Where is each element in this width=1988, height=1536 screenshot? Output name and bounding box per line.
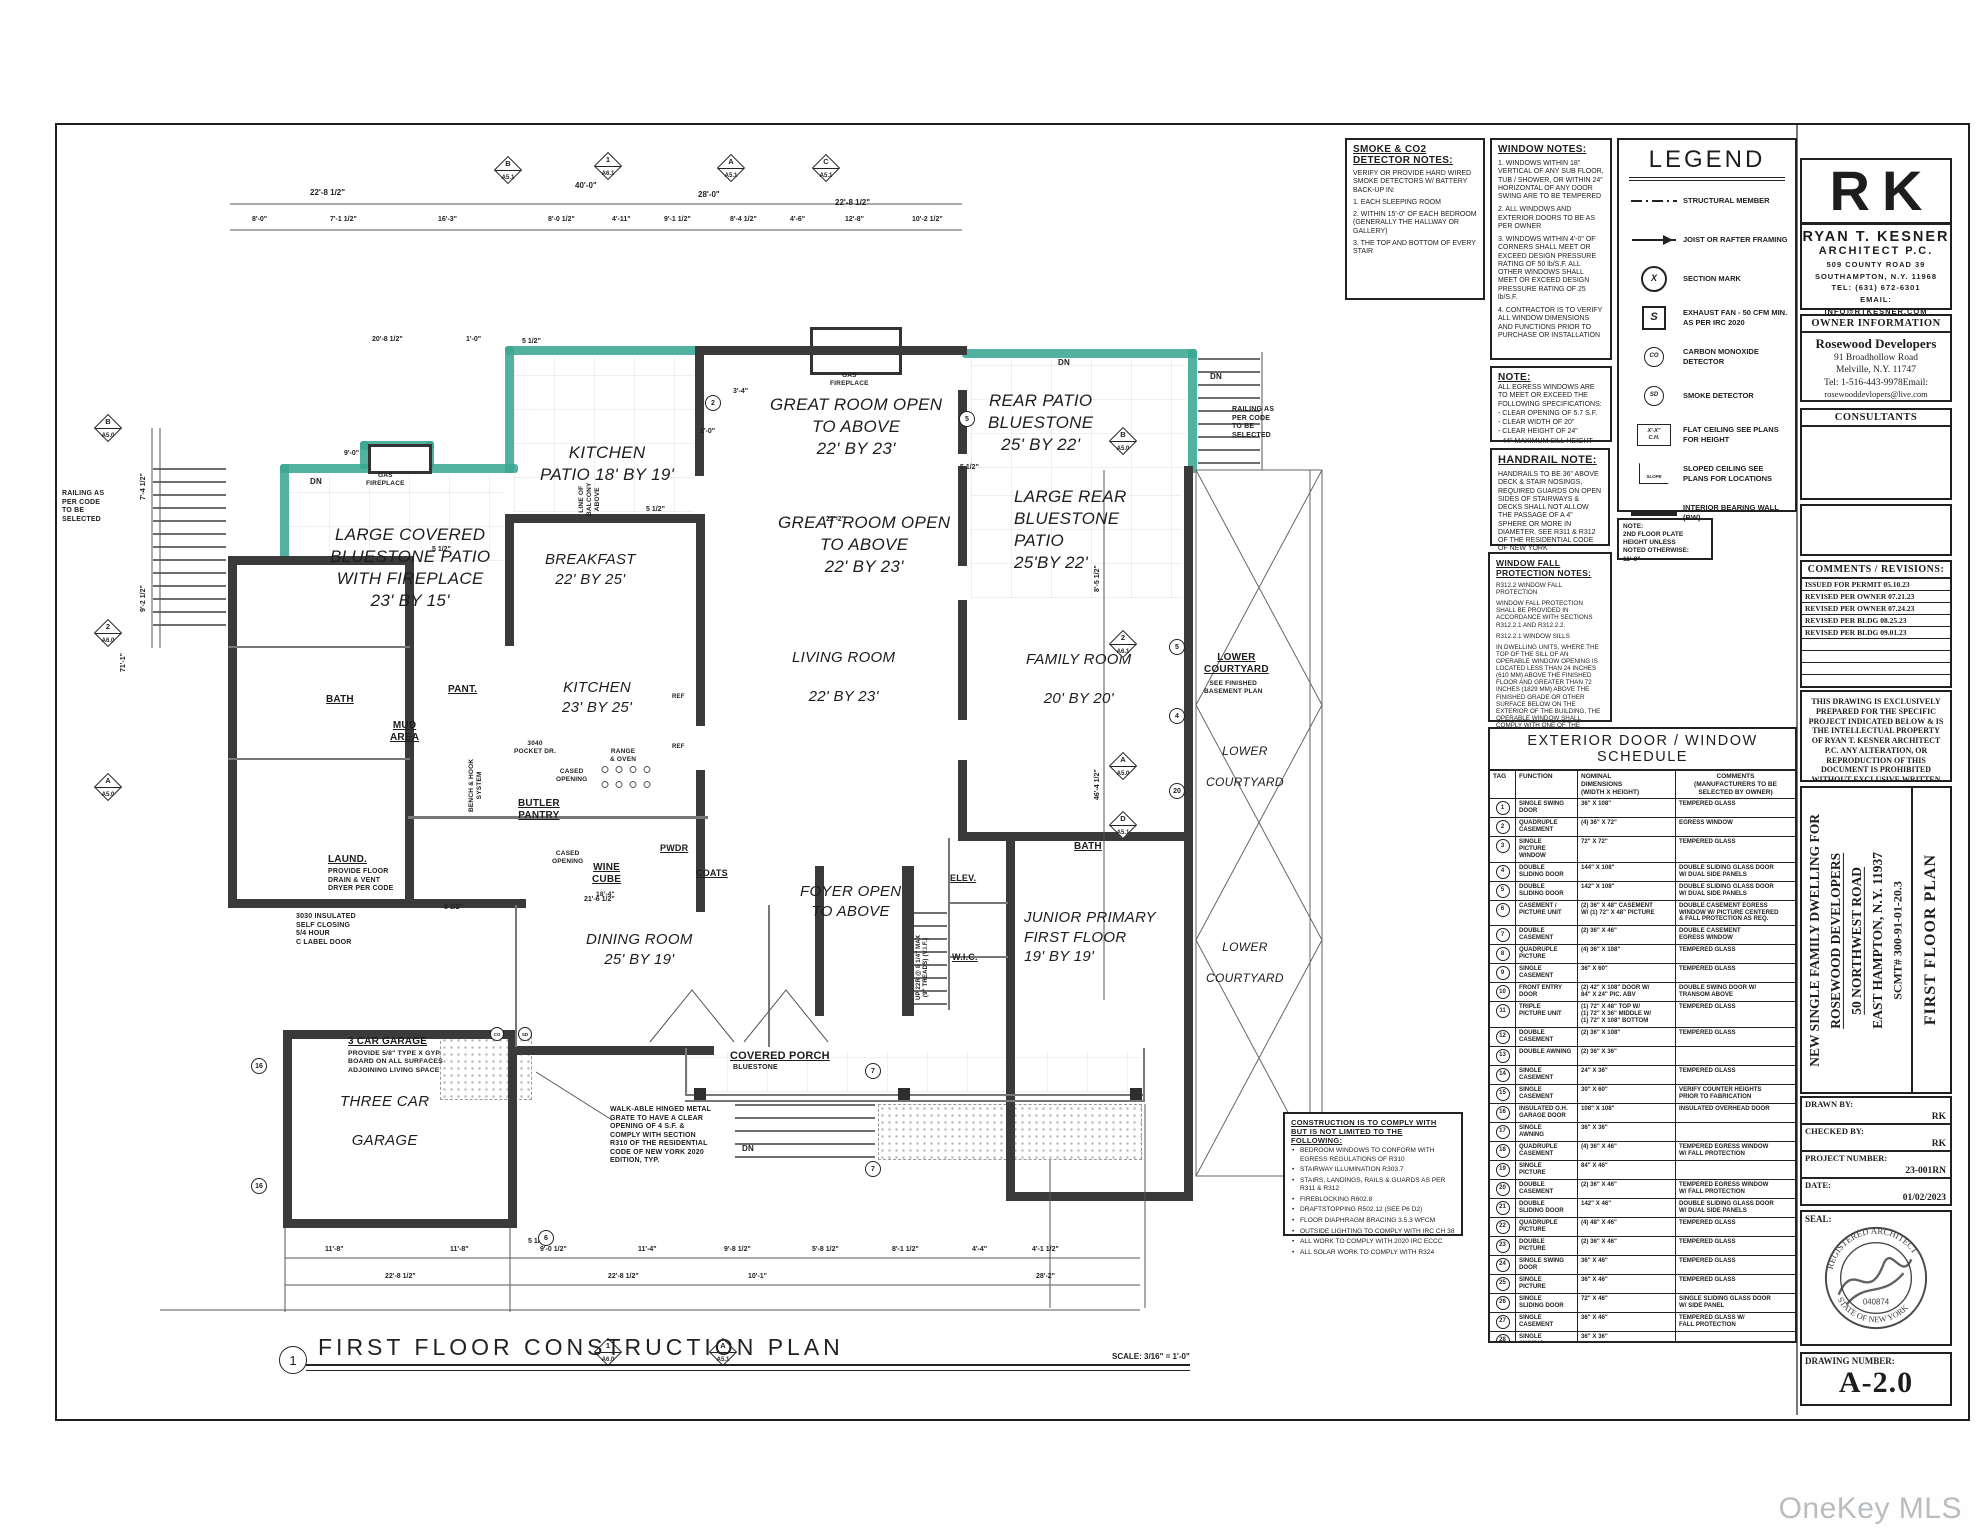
svg-text:040874: 040874	[1863, 1298, 1890, 1307]
patio-highlight	[280, 464, 289, 564]
room-label: DN	[742, 1144, 754, 1154]
schedule-cell-comments: INSULATED OVERHEAD DOOR	[1676, 1104, 1795, 1122]
room-label: BREAKFAST 22' BY 25'	[545, 550, 636, 589]
schedule-cell-function: DOUBLE CASEMENT	[1516, 926, 1578, 944]
dimension-label: 8'-4 1/2"	[730, 216, 757, 223]
tag-bubble: CO	[490, 1027, 504, 1041]
schedule-cell-tag: 11	[1490, 1002, 1516, 1026]
legend-item: INTERIOR BEARING WALL (BW)	[1619, 493, 1795, 532]
wall-segment	[1006, 836, 1015, 1200]
construction-title: CONSTRUCTION IS TO COMPLY WITH BUT IS NO…	[1291, 1118, 1455, 1145]
porch-edge	[685, 1048, 687, 1096]
plan-number-bubble: 1	[279, 1346, 307, 1374]
legend-item: S EXHAUST FAN - 50 CFM MIN. AS PER IRC 2…	[1619, 298, 1795, 337]
handrail-note-title: HANDRAIL NOTE:	[1498, 454, 1602, 466]
patio-highlight	[962, 349, 1197, 358]
schedule-cell-dimensions: (2) 42" X 108" DOOR W/ 84" X 24" PIC. AB…	[1578, 983, 1676, 1001]
dimension-label: 5 1/2"	[646, 506, 665, 513]
section-marker-line	[1110, 441, 1136, 442]
dimension-label: 4'-11"	[612, 216, 631, 223]
wall-segment	[958, 760, 967, 840]
room-label: BLUESTONE	[733, 1064, 778, 1073]
section-marker-sheet: A5.0	[94, 792, 122, 798]
legend-item: X SECTION MARK	[1619, 259, 1795, 298]
dimension-label: 16'-3"	[438, 216, 457, 223]
schedule-title: EXTERIOR DOOR / WINDOW SCHEDULE	[1490, 729, 1795, 771]
wall-segment	[510, 514, 702, 523]
section-marker-sheet: A5.0	[1109, 446, 1137, 452]
room-label: PANT.	[448, 684, 477, 696]
legend-item: SD SMOKE DETECTOR	[1619, 376, 1795, 415]
schedule-header-dimensions: NOMINAL DIMENSIONS (WIDTH X HEIGHT)	[1578, 771, 1676, 798]
schedule-cell-dimensions: 24" X 36"	[1578, 1066, 1676, 1084]
dimension-label: 9'-1 1/2"	[664, 216, 691, 223]
room-label: W.I.C.	[952, 952, 978, 963]
schedule-cell-comments: TEMPERED GLASS	[1676, 1028, 1795, 1046]
schedule-cell-dimensions: (2) 36" X 108"	[1578, 1028, 1676, 1046]
firm-logo: RK	[1802, 160, 1950, 225]
schedule-cell-comments	[1676, 1047, 1795, 1065]
room-label: COVERED PORCH	[730, 1050, 830, 1063]
schedule-cell-comments: DOUBLE SWING DOOR W/ TRANSOM ABOVE	[1676, 983, 1795, 1001]
revision-row	[1802, 651, 1950, 663]
firm-email-label: EMAIL:	[1802, 294, 1950, 306]
schedule-cell-tag: 1	[1490, 799, 1516, 817]
schedule-header-comments: COMMENTS (MANUFACTURERS TO BE SELECTED B…	[1676, 771, 1795, 798]
schedule-cell-function: DOUBLE SLIDING DOOR	[1516, 863, 1578, 881]
legend-symbol-icon: X	[1625, 264, 1683, 294]
section-marker-line	[95, 787, 121, 788]
room-label: MUD AREA	[390, 720, 419, 744]
room-label: GAS FIREPLACE	[830, 372, 869, 388]
schedule-cell-dimensions: 36" X 46"	[1578, 1313, 1676, 1331]
dimension-label: 4'-4"	[972, 1246, 987, 1253]
revision-row	[1802, 675, 1950, 687]
window-notes-box: WINDOW NOTES: 1. WINDOWS WITHIN 18" VERT…	[1490, 138, 1612, 360]
schedule-row: 22 QUADRUPLE PICTURE (4) 48" X 46" TEMPE…	[1490, 1218, 1795, 1237]
dimension-label: 5 1/2"	[960, 464, 979, 471]
legend-item-label: JOIST OR RAFTER FRAMING	[1683, 235, 1788, 244]
section-marker-sheet: A5.0	[1109, 771, 1137, 777]
schedule-cell-comments: DOUBLE CASEMENT EGRESS WINDOW W/ PICTURE…	[1676, 901, 1795, 925]
section-marker-sheet: A5.1	[494, 175, 522, 181]
partition	[228, 758, 410, 760]
window-notes-title: WINDOW NOTES:	[1498, 144, 1604, 155]
room-label: ELEV.	[950, 873, 976, 884]
porch-steps	[735, 1104, 875, 1158]
note-paragraph: 3. WINDOWS WITHIN 4'-0" OF CORNERS SHALL…	[1498, 236, 1604, 302]
titleblock-fields: DRAWN BY: RK CHECKED BY: RK PROJECT NUMB…	[1800, 1098, 1952, 1206]
schedule-cell-dimensions: (4) 36" X 46"	[1578, 1142, 1676, 1160]
room-label: SEE FINISHED BASEMENT PLAN	[1204, 680, 1263, 696]
note-paragraph: WINDOW FALL PROTECTION SHALL BE PROVIDED…	[1496, 600, 1604, 628]
schedule-cell-function: SINGLE AWNING	[1516, 1123, 1578, 1141]
schedule-row: 7 DOUBLE CASEMENT (2) 36" X 46" DOUBLE C…	[1490, 926, 1795, 945]
section-marker-sheet: A5.1	[1109, 830, 1137, 836]
project-line: ROSEWOOD DEVELOPERS	[1828, 852, 1843, 1028]
partition	[228, 646, 410, 648]
dimension-label: 7'-4 1/2"	[140, 473, 147, 500]
room-label: LOWER COURTYARD	[1206, 744, 1284, 791]
schedule-row: 17 SINGLE AWNING 36" X 36"	[1490, 1123, 1795, 1142]
section-marker-line	[718, 168, 744, 169]
tag-bubble: 6	[538, 1230, 554, 1246]
construction-bullet: STAIRS, LANDINGS, RAILS & GUARDS AS PER …	[1291, 1177, 1455, 1194]
section-marker-line	[495, 170, 521, 171]
sheet-name: FIRST FLOOR PLAN	[1922, 854, 1940, 1025]
wall-segment	[1184, 466, 1193, 1200]
schedule-cell-function: TRIPLE PICTURE UNIT	[1516, 1002, 1578, 1026]
dimension-label: 22'-8 1/2"	[608, 1273, 639, 1280]
construction-compliance-box: CONSTRUCTION IS TO COMPLY WITH BUT IS NO…	[1283, 1112, 1463, 1236]
wall-segment	[958, 600, 967, 720]
schedule-cell-dimensions: 72" X 72"	[1578, 837, 1676, 861]
schedule-cell-function: QUADRUPLE PICTURE	[1516, 945, 1578, 963]
schedule-cell-dimensions: 36" X 36"	[1578, 1123, 1676, 1141]
room-label: 3 CAR GARAGE	[348, 1036, 427, 1048]
schedule-row: 4 DOUBLE SLIDING DOOR 144" X 108" DOUBLE…	[1490, 863, 1795, 882]
plan-title-underline	[306, 1364, 1190, 1371]
firm-address: 509 COUNTY ROAD 39 SOUTHAMPTON, N.Y. 119…	[1802, 259, 1950, 317]
schedule-row: 20 DOUBLE CASEMENT (2) 36" X 46" TEMPERE…	[1490, 1180, 1795, 1199]
tag-bubble: 5	[1169, 639, 1185, 655]
section-marker-line	[1110, 766, 1136, 767]
section-marker-letter: A	[94, 776, 122, 785]
room-label: PWDR	[660, 843, 688, 854]
schedule-cell-tag: 25	[1490, 1275, 1516, 1293]
section-marker-letter: D	[1109, 814, 1137, 823]
wall-segment	[283, 1030, 292, 1228]
schedule-cell-function: QUADRUPLE CASEMENT	[1516, 818, 1578, 836]
schedule-cell-tag: 16	[1490, 1104, 1516, 1122]
empty-box	[1800, 504, 1952, 556]
field-value: 23-001RN	[1905, 1166, 1946, 1176]
porch-post	[694, 1088, 706, 1100]
tag-bubble: 20	[1169, 783, 1185, 799]
section-marker-sheet: A5.1	[717, 173, 745, 179]
section-marker-line	[813, 168, 839, 169]
legend-item-label: SECTION MARK	[1683, 274, 1741, 283]
dimension-label: 8'-0"	[252, 216, 267, 223]
legend-box: LEGEND STRUCTURAL MEMBER JOIST OR RAFTER…	[1617, 138, 1797, 512]
dimension-label: 28'-0"	[698, 190, 720, 199]
schedule-cell-function: CASEMENT / PICTURE UNIT	[1516, 901, 1578, 925]
plan-title: FIRST FLOOR CONSTRUCTION PLAN	[318, 1334, 844, 1361]
schedule-cell-comments: TEMPERED GLASS	[1676, 799, 1795, 817]
field-label: DATE:	[1805, 1180, 1831, 1190]
schedule-row: 23 DOUBLE PICTURE (2) 36" X 46" TEMPERED…	[1490, 1237, 1795, 1256]
schedule-cell-tag: 6	[1490, 901, 1516, 925]
room-label: REF	[672, 694, 685, 701]
wall-segment	[696, 770, 705, 912]
seal-box: SEAL: REGISTERED ARCHITECT STATE OF NEW …	[1800, 1210, 1952, 1346]
dimension-label: 7'-1 1/2"	[330, 216, 357, 223]
wall-segment	[283, 1219, 517, 1228]
consultants-header: CONSULTANTS	[1802, 410, 1950, 427]
schedule-row: 16 INSULATED O.H. GARAGE DOOR 108" X 108…	[1490, 1104, 1795, 1123]
schedule-row: 14 SINGLE CASEMENT 24" X 36" TEMPERED GL…	[1490, 1066, 1795, 1085]
room-label: KITCHEN PATIO 18' BY 19'	[540, 442, 674, 486]
room-label: GREAT ROOM OPEN TO ABOVE 22' BY 23'	[778, 512, 950, 578]
revisions-header: COMMENTS / REVISIONS:	[1802, 562, 1950, 579]
room-label: DN	[1210, 372, 1222, 382]
schedule-row: 25 SINGLE PICTURE 36" X 46" TEMPERED GLA…	[1490, 1275, 1795, 1294]
dimension-label: 46'-4 1/2"	[1094, 769, 1101, 800]
tag-bubble: 2	[705, 395, 721, 411]
dimension-label: 5'-8 1/2"	[812, 1246, 839, 1253]
dimension-label: 1'-0"	[700, 428, 715, 435]
porch-edge	[685, 1094, 1145, 1096]
range-burners	[598, 762, 654, 792]
egress-note-box: NOTE: ALL EGRESS WINDOWS ARE TO MEET OR …	[1490, 366, 1612, 442]
schedule-cell-comments: TEMPERED GLASS	[1676, 1237, 1795, 1255]
construction-bullet: BEDROOM WINDOWS TO CONFORM WITH EGRESS R…	[1291, 1147, 1455, 1164]
patio-highlight	[505, 346, 701, 355]
partition	[515, 905, 517, 1047]
note-line: ALL EGRESS WINDOWS ARE TO MEET OR EXCEED…	[1498, 384, 1604, 409]
dimension-label: 22'-2"	[826, 516, 845, 523]
schedule-cell-tag: 19	[1490, 1161, 1516, 1179]
schedule-cell-dimensions: (2) 36" X 48" CASEMENT W/ (1) 72" X 48" …	[1578, 901, 1676, 925]
section-marker: B A5.1	[494, 156, 522, 184]
legend-item-label: FLAT CEILING SEE PLANS FOR HEIGHT	[1683, 425, 1789, 444]
schedule-cell-dimensions: 142" X 108"	[1578, 882, 1676, 900]
schedule-cell-dimensions: 84" X 46"	[1578, 1161, 1676, 1179]
dimension-label: 21'-6 1/2"	[584, 896, 615, 903]
legend-item-label: CARBON MONOXIDE DETECTOR	[1683, 347, 1789, 366]
schedule-cell-tag: 4	[1490, 863, 1516, 881]
schedule-cell-dimensions: (4) 36" X 72"	[1578, 818, 1676, 836]
dimension-label: 8 1/2"	[444, 904, 463, 911]
titleblock-field: CHECKED BY: RK	[1800, 1123, 1952, 1152]
firm-phone: TEL: (631) 672-6301	[1802, 282, 1950, 294]
schedule-cell-dimensions: 142" X 46"	[1578, 1199, 1676, 1217]
section-marker-line	[95, 428, 121, 429]
legend-item-label: EXHAUST FAN - 50 CFM MIN. AS PER IRC 202…	[1683, 308, 1789, 327]
legend-item: X'-X" C.H. FLAT CEILING SEE PLANS FOR HE…	[1619, 415, 1795, 454]
schedule-cell-function: DOUBLE CASEMENT	[1516, 1028, 1578, 1046]
room-label: CASED OPENING	[552, 850, 583, 866]
construction-bullet: FIREBLOCKING R602.8	[1291, 1196, 1455, 1205]
room-label: 3040 POCKET DR.	[514, 740, 556, 756]
porch-edge	[1143, 1048, 1145, 1102]
section-marker-letter: B	[1109, 430, 1137, 439]
wall-segment	[508, 1030, 517, 1228]
section-marker-letter: 2	[94, 622, 122, 631]
note-paragraph: R312.2 WINDOW FALL PROTECTION	[1496, 582, 1604, 596]
section-marker-line	[1110, 644, 1136, 645]
schedule-cell-dimensions: 36" X 60"	[1578, 964, 1676, 982]
schedule-cell-comments: TEMPERED EGRESS WINDOW W/ FALL PROTECTIO…	[1676, 1142, 1795, 1160]
schedule-cell-tag: 17	[1490, 1123, 1516, 1141]
schedule-cell-comments	[1676, 1123, 1795, 1141]
room-label: CASED OPENING	[556, 768, 587, 784]
dimension-label: 22'-8 1/2"	[385, 1273, 416, 1280]
stair-wall	[902, 866, 914, 1016]
porch-post	[1130, 1088, 1142, 1100]
dimension-label: 11'-8"	[450, 1246, 469, 1253]
section-marker: D A5.1	[1109, 811, 1137, 839]
room-label: LARGE COVERED BLUESTONE PATIO WITH FIREP…	[330, 524, 490, 612]
porch-edge	[685, 1100, 1145, 1102]
partition	[948, 838, 950, 1010]
section-marker: A A5.0	[1109, 752, 1137, 780]
legend-item: STRUCTURAL MEMBER	[1619, 181, 1795, 220]
drawing-number-box: DRAWING NUMBER: A-2.0	[1800, 1352, 1952, 1406]
schedule-cell-tag: 23	[1490, 1237, 1516, 1255]
legend-item: JOIST OR RAFTER FRAMING	[1619, 220, 1795, 259]
schedule-cell-dimensions: 144" X 108"	[1578, 863, 1676, 881]
note-line: - CLEAR HEIGHT OF 24"	[1498, 428, 1604, 436]
legend-symbol-icon: X'-X" C.H.	[1625, 420, 1683, 450]
note-paragraph: R312.2.1 WINDOW SILLS	[1496, 633, 1604, 640]
schedule-cell-function: SINGLE CASEMENT	[1516, 1066, 1578, 1084]
schedule-row: 10 FRONT ENTRY DOOR (2) 42" X 108" DOOR …	[1490, 983, 1795, 1002]
schedule-cell-comments: TEMPERED GLASS	[1676, 945, 1795, 963]
schedule-cell-tag: 24	[1490, 1256, 1516, 1274]
room-label: LARGE REAR BLUESTONE PATIO 25'BY 22'	[1014, 486, 1127, 574]
room-label: UP 22R @ 8 1/4" MAX (9" TREADS) (V.I.F.)	[916, 935, 931, 1000]
schedule-cell-comments	[1676, 1332, 1795, 1343]
section-marker: A A5.0	[94, 773, 122, 801]
section-marker-line	[95, 633, 121, 634]
room-label: REAR PATIO BLUESTONE 25' BY 22'	[988, 390, 1093, 456]
section-marker-sheet: A6.1	[594, 171, 622, 177]
dimension-label: 5 1/2"	[522, 338, 541, 345]
dimension-label: 40'-0"	[575, 181, 597, 190]
schedule-cell-dimensions: 36" X 36"	[1578, 1332, 1676, 1343]
schedule-cell-tag: 3	[1490, 837, 1516, 861]
note-line: - CLEAR OPENING OF 5.7 S.F.	[1498, 410, 1604, 418]
legend-symbol-icon: S	[1625, 303, 1683, 333]
schedule-cell-function: DOUBLE CASEMENT	[1516, 1180, 1578, 1198]
dimension-label: 1'-0"	[466, 336, 481, 343]
room-label: BENCH & HOOK SYSTEM	[468, 759, 484, 812]
wall-segment	[505, 514, 514, 646]
gas-fireplace	[368, 444, 432, 474]
legend-symbol-icon: SLOPE	[1625, 459, 1683, 489]
sheet-name-cell: FIRST FLOOR PLAN	[1911, 788, 1950, 1092]
svg-text:REGISTERED ARCHITECT: REGISTERED ARCHITECT	[1825, 1226, 1921, 1271]
tag-bubble: 7	[865, 1063, 881, 1079]
note-line: 1. EACH SLEEPING ROOM	[1353, 199, 1477, 207]
schedule-cell-function: DOUBLE AWNING	[1516, 1047, 1578, 1065]
revision-row: REVISED PER BLDG 08.25.23	[1802, 615, 1950, 627]
dimension-label: 11'-4"	[638, 1246, 657, 1253]
schedule-row: 28 SINGLE AWNING 36" X 36"	[1490, 1332, 1795, 1343]
schedule-cell-tag: 15	[1490, 1085, 1516, 1103]
plan-scale: SCALE: 3/16" = 1'-0"	[1112, 1352, 1190, 1361]
schedule-cell-comments: VERIFY COUNTER HEIGHTS PRIOR TO FABRICAT…	[1676, 1085, 1795, 1103]
note-line: 3. THE TOP AND BOTTOM OF EVERY STAIR	[1353, 240, 1477, 257]
owner-name: Rosewood Developers	[1802, 336, 1950, 352]
schedule-cell-function: SINGLE SLIDING DOOR	[1516, 1294, 1578, 1312]
firm-subtitle: ARCHITECT P.C.	[1802, 245, 1950, 257]
revisions-box: COMMENTS / REVISIONS: ISSUED FOR PERMIT …	[1800, 560, 1952, 688]
schedule-cell-comments: SINGLE SLIDING GLASS DOOR W/ SIDE PANEL	[1676, 1294, 1795, 1312]
smoke-co2-notes-box: SMOKE & CO2 DETECTOR NOTES: VERIFY OR PR…	[1345, 138, 1485, 300]
schedule-cell-comments: TEMPERED EGRESS WINDOW W/ FALL PROTECTIO…	[1676, 1180, 1795, 1198]
schedule-cell-comments	[1676, 1161, 1795, 1179]
wall-segment	[695, 346, 967, 355]
architect-seal: REGISTERED ARCHITECT STATE OF NEW YORK 0…	[1817, 1222, 1935, 1334]
room-label: FAMILY ROOM 20' BY 20'	[1026, 650, 1132, 709]
dimension-label: 4'-6"	[790, 216, 805, 223]
room-label: COATS	[696, 868, 728, 879]
project-line: 50 NORTHWEST ROAD	[1849, 866, 1864, 1014]
room-label: LOWER COURTYARD	[1204, 652, 1269, 676]
porch-post	[898, 1088, 910, 1100]
legend-item: CO CARBON MONOXIDE DETECTOR	[1619, 337, 1795, 376]
schedule-cell-function: FRONT ENTRY DOOR	[1516, 983, 1578, 1001]
room-label: RANGE & OVEN	[610, 748, 636, 764]
schedule-row: 1 SINGLE SWING DOOR 36" X 108" TEMPERED …	[1490, 799, 1795, 818]
schedule-row: 5 DOUBLE SLIDING DOOR 142" X 108" DOUBLE…	[1490, 882, 1795, 901]
owner-info-box: OWNER INFORMATION Rosewood Developers 91…	[1800, 314, 1952, 402]
fall-protection-title: WINDOW FALL PROTECTION NOTES:	[1496, 558, 1604, 578]
room-label: LAUND.	[328, 854, 367, 866]
room-label: JUNIOR PRIMARY FIRST FLOOR 19' BY 19'	[1024, 908, 1156, 967]
schedule-row: 15 SINGLE CASEMENT 30" X 60" VERIFY COUN…	[1490, 1085, 1795, 1104]
schedule-cell-tag: 26	[1490, 1294, 1516, 1312]
schedule-cell-function: DOUBLE SLIDING DOOR	[1516, 1199, 1578, 1217]
patio-highlight	[1188, 349, 1197, 473]
schedule-cell-tag: 5	[1490, 882, 1516, 900]
titleblock-field: DATE: 01/02/2023	[1800, 1177, 1952, 1206]
egress-note-title: NOTE:	[1498, 372, 1604, 383]
door-window-schedule: EXTERIOR DOOR / WINDOW SCHEDULE TAG FUNC…	[1488, 727, 1797, 1343]
owner-address-line: 91 Broadhollow Road	[1802, 352, 1950, 364]
schedule-row: 11 TRIPLE PICTURE UNIT (1) 72" X 48" TOP…	[1490, 1002, 1795, 1027]
schedule-cell-comments: TEMPERED GLASS	[1676, 837, 1795, 861]
room-label: DINING ROOM 25' BY 19'	[586, 930, 693, 969]
schedule-cell-function: SINGLE PICTURE	[1516, 1161, 1578, 1179]
schedule-cell-tag: 12	[1490, 1028, 1516, 1046]
room-label: THREE CAR GARAGE	[340, 1092, 429, 1151]
owner-phone: Tel: 1-516-443-9978Email:	[1802, 377, 1950, 389]
legend-symbol-icon: CO	[1625, 342, 1683, 372]
note-paragraph: 2. ALL WINDOWS AND EXTERIOR DOORS TO BE …	[1498, 206, 1604, 231]
schedule-cell-comments: TEMPERED GLASS	[1676, 964, 1795, 982]
schedule-cell-function: SINGLE AWNING	[1516, 1332, 1578, 1343]
dimension-label: 71'-1"	[120, 653, 127, 672]
tag-bubble: 7	[865, 1161, 881, 1177]
schedule-row: 27 SINGLE CASEMENT 36" X 46" TEMPERED GL…	[1490, 1313, 1795, 1332]
dimension-label: 22'-8 1/2"	[835, 198, 870, 207]
dimension-label: 10'-1"	[748, 1273, 767, 1280]
note-line: - CLEAR WIDTH OF 20"	[1498, 419, 1604, 427]
field-label: DRAWN BY:	[1805, 1099, 1853, 1109]
scanned-floor-plan-page: KITCHEN PATIO 18' BY 19'REAR PATIO BLUES…	[0, 0, 1988, 1536]
wall-segment	[1006, 1192, 1193, 1201]
room-label: WALK-ABLE HINGED METAL GRATE TO HAVE A C…	[610, 1106, 711, 1166]
schedule-cell-comments: DOUBLE SLIDING GLASS DOOR W/ DUAL SIDE P…	[1676, 1199, 1795, 1217]
section-marker-letter: C	[812, 157, 840, 166]
schedule-cell-tag: 22	[1490, 1218, 1516, 1236]
section-marker-line	[595, 166, 621, 167]
section-marker-sheet: A5.1	[812, 173, 840, 179]
construction-bullet: OUTSIDE LIGHTING TO COMPLY WITH IRC CH 3…	[1291, 1228, 1455, 1237]
handrail-note-box: HANDRAIL NOTE: HANDRAILS TO BE 36" ABOVE…	[1490, 448, 1610, 546]
schedule-cell-comments: TEMPERED GLASS	[1676, 1002, 1795, 1026]
schedule-cell-comments: DOUBLE CASEMENT EGRESS WINDOW	[1676, 926, 1795, 944]
construction-bullet: FLOOR DIAPHRAGM BRACING 3.5.3 WFCM	[1291, 1217, 1455, 1226]
room-label: REF	[672, 744, 685, 751]
schedule-cell-tag: 13	[1490, 1047, 1516, 1065]
schedule-cell-function: SINGLE PICTURE	[1516, 1275, 1578, 1293]
schedule-cell-function: SINGLE CASEMENT	[1516, 1085, 1578, 1103]
schedule-cell-comments: TEMPERED GLASS	[1676, 1066, 1795, 1084]
